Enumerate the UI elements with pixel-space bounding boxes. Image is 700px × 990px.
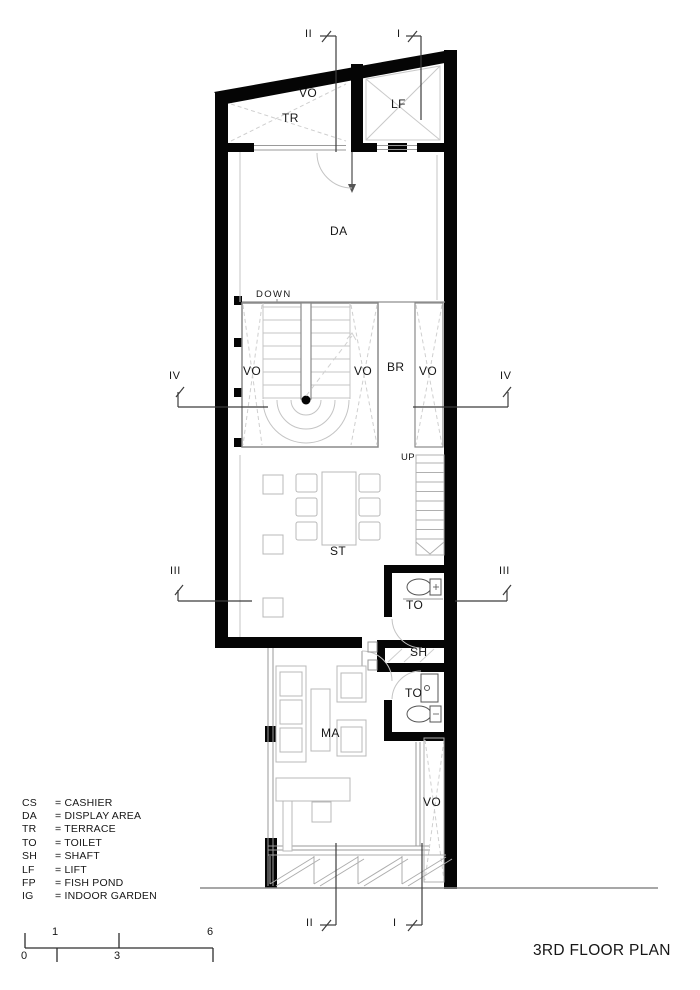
label-down: DOWN (256, 289, 292, 300)
sofa (276, 666, 306, 762)
marker-iii-right: III (499, 565, 510, 577)
legend-label: = INDOOR GARDEN (55, 890, 157, 902)
coffee-table (311, 689, 330, 751)
legend-code: CS (22, 797, 55, 809)
toilet-lower-icon (407, 706, 441, 722)
legend-code: SH (22, 850, 55, 862)
label-sitting: ST (330, 544, 346, 558)
label-up: UP (401, 452, 415, 463)
toilet-upper-top-wall (384, 565, 457, 573)
scale-tick-0: 0 (21, 950, 27, 962)
label-shaft: SH (410, 645, 427, 659)
left-wall (215, 92, 228, 648)
section-line-ii-top (320, 31, 336, 152)
armchairs (337, 666, 366, 756)
legend-item: FP= FISH POND (22, 876, 157, 889)
legend-label: = TERRACE (55, 823, 116, 835)
marker-ii-top: II (305, 28, 312, 40)
legend: CS= CASHIER DA= DISPLAY AREA TR= TERRACE… (22, 796, 157, 903)
terrace-bottom-wall (215, 143, 254, 152)
scale-tick-3: 3 (114, 950, 120, 962)
up-stair (416, 455, 444, 555)
slanted-front-wall (214, 50, 450, 104)
scale-tick-6: 6 (207, 926, 213, 938)
legend-label: = TOILET (55, 837, 102, 849)
section-line-ii-bottom (320, 843, 336, 931)
desk (276, 778, 350, 851)
legend-code: IG (22, 890, 55, 902)
sitting-bottom-wall (215, 637, 362, 648)
legend-code: DA (22, 810, 55, 822)
sink-icon (421, 674, 438, 702)
floor-plan-sheet: VO TR LF DA DOWN VO VO BR VO UP ST TO SH… (0, 0, 700, 990)
display-plinths (263, 475, 283, 617)
legend-code: LF (22, 864, 55, 876)
marker-iii-left: III (170, 565, 181, 577)
legend-label: = DISPLAY AREA (55, 810, 141, 822)
label-display-area: DA (330, 224, 347, 238)
section-line-i-top (406, 31, 421, 120)
section-line-i-bottom (406, 843, 422, 931)
label-vo-bottom-right: VO (423, 795, 441, 809)
marker-i-bottom: I (393, 917, 397, 929)
legend-label: = CASHIER (55, 797, 113, 809)
legend-item: LF= LIFT (22, 863, 157, 876)
legend-item: SH= SHAFT (22, 850, 157, 863)
right-wall (444, 50, 457, 889)
sheet-title: 3RD FLOOR PLAN (533, 942, 671, 960)
label-master-area: MA (321, 726, 340, 740)
legend-code: TO (22, 837, 55, 849)
legend-item: TR= TERRACE (22, 823, 157, 836)
legend-code: TR (22, 823, 55, 835)
marker-iv-left: IV (169, 370, 181, 382)
section-line-iii-right (455, 585, 511, 601)
dining-table-set (296, 472, 380, 545)
legend-item: DA= DISPLAY AREA (22, 809, 157, 822)
label-vo-stair-left: VO (243, 364, 261, 378)
stair-newel-dot (302, 396, 311, 405)
label-lift: LF (391, 97, 406, 111)
label-terrace: TR (282, 111, 299, 125)
toilet-upper-icon (403, 579, 443, 599)
marker-i-top: I (397, 28, 401, 40)
marker-ii-bottom: II (306, 917, 313, 929)
label-vo-top: VO (299, 86, 317, 100)
main-stair (242, 303, 443, 447)
label-toilet-lower: TO (405, 686, 422, 700)
legend-label: = SHAFT (55, 850, 100, 862)
legend-code: FP (22, 877, 55, 889)
legend-label: = LIFT (55, 864, 87, 876)
legend-item: CS= CASHIER (22, 796, 157, 809)
toilet-lower-bottom-wall (384, 732, 457, 741)
legend-item: TO= TOILET (22, 836, 157, 849)
label-toilet-upper: TO (406, 598, 423, 612)
label-vo-stair-right: VO (354, 364, 372, 378)
marker-iv-right: IV (500, 370, 512, 382)
label-bridge: BR (387, 360, 404, 374)
label-vo-mid-right: VO (419, 364, 437, 378)
scale-tick-1: 1 (52, 926, 58, 938)
lift-left-wall (351, 64, 363, 152)
legend-item: IG= INDOOR GARDEN (22, 890, 157, 903)
legend-label: = FISH POND (55, 877, 123, 889)
